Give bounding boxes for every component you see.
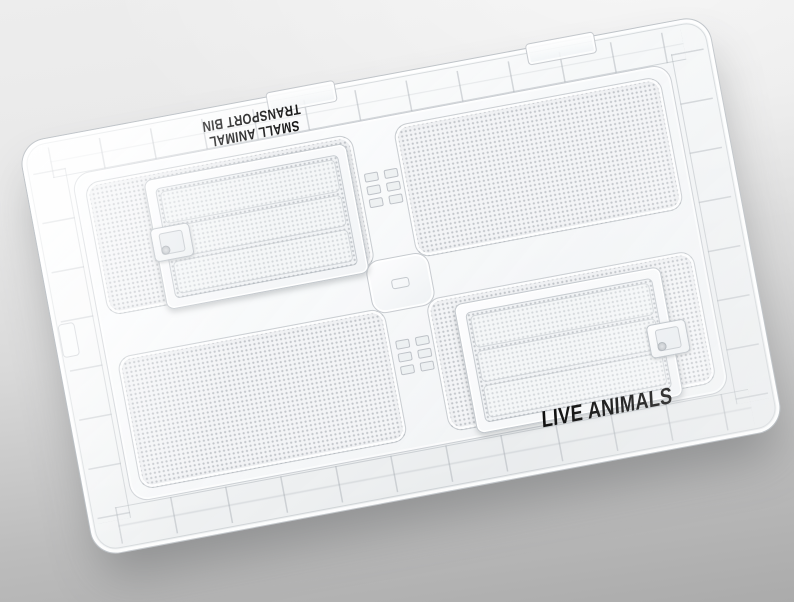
vent-slot [386, 180, 401, 191]
transport-bin-lid: SMALL ANIMAL TRANSPORT BIN LIVE ANIMALS [17, 14, 785, 558]
vent-slot [364, 171, 379, 182]
vent-slot [366, 184, 381, 195]
vent-slot [383, 168, 398, 179]
vent-slot [397, 351, 412, 362]
vent-slot [369, 197, 384, 208]
center-hub [364, 251, 437, 316]
product-photo-backdrop: SMALL ANIMAL TRANSPORT BIN LIVE ANIMALS [0, 0, 794, 602]
access-door-top-left [143, 143, 370, 311]
vent-slot [417, 348, 432, 359]
cross-rib-vent-slots-top [364, 168, 402, 208]
vent-slot [400, 364, 415, 375]
vent-slot [395, 338, 410, 349]
door-latch [645, 318, 691, 359]
cross-rib-vent-slots-bottom [395, 335, 433, 375]
vent-slot [388, 193, 403, 204]
vent-slot [419, 360, 434, 371]
door-latch [149, 222, 195, 263]
vent-slot [415, 335, 430, 346]
